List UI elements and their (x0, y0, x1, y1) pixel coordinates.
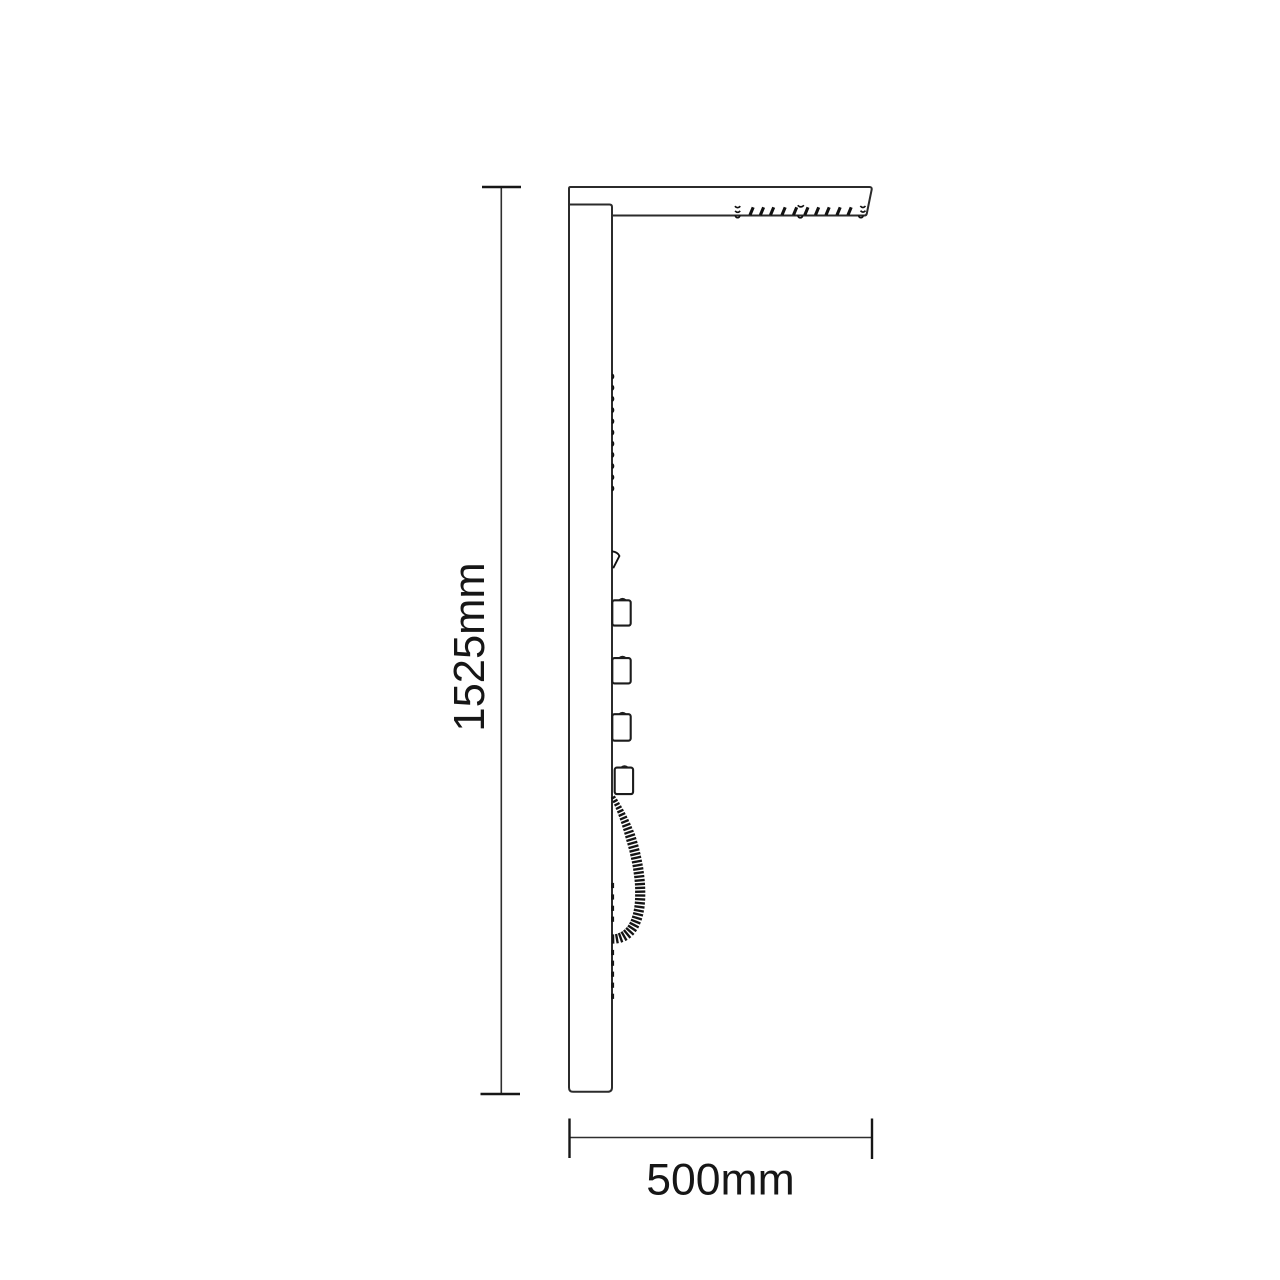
svg-text:500mm: 500mm (646, 1156, 794, 1205)
svg-text:1525mm: 1525mm (446, 562, 494, 731)
